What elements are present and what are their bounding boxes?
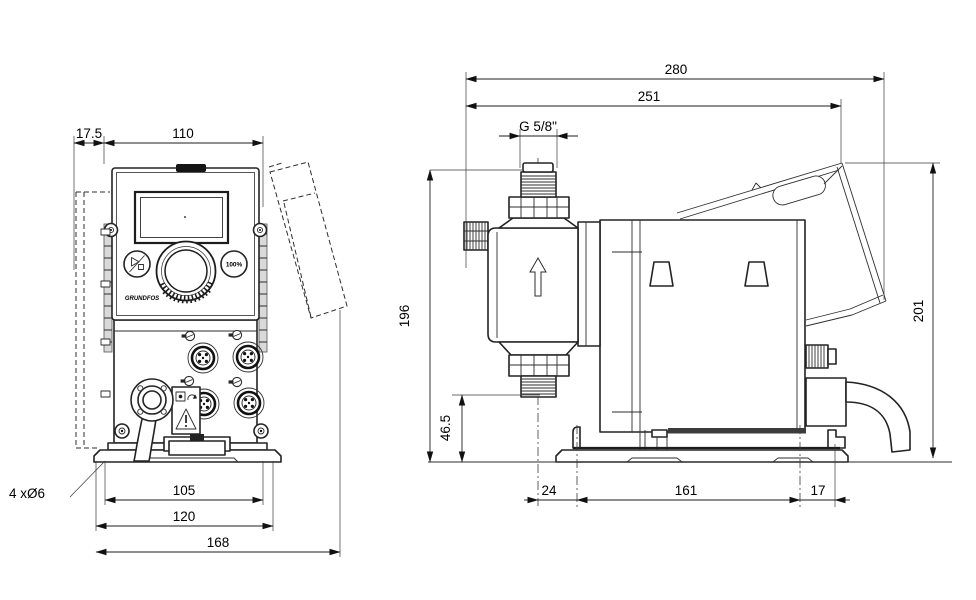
dim-housing-width: 110 — [172, 126, 194, 141]
vent-tab — [650, 262, 673, 286]
screw-icon — [254, 224, 267, 237]
display-cursor-dot — [184, 216, 186, 218]
m12-connector-icon — [188, 343, 218, 373]
technical-drawing-page: 100% GRUNDFOS — [0, 0, 976, 600]
rail-band — [668, 428, 806, 434]
dim-plate-offset-front: 24 — [541, 483, 557, 498]
dim-overall-height: 201 — [911, 300, 926, 323]
dim-connection-thread: G 5/8" — [519, 119, 557, 134]
rear-connections — [806, 345, 910, 452]
rotated-control-cube-dashed — [269, 162, 347, 318]
m12-connector-icon — [233, 342, 263, 372]
dim-bracket-depth: 17.5 — [76, 126, 102, 141]
cable-entry-block — [806, 378, 846, 426]
cube-handle-recess — [771, 174, 828, 208]
dim-plate-length: 161 — [675, 483, 698, 498]
dim-plate-offset-rear: 17 — [810, 483, 825, 498]
mains-cable — [846, 382, 910, 452]
screw-icon — [115, 424, 129, 438]
dim-valve-height: 46.5 — [438, 415, 453, 441]
deaeration-valve — [464, 222, 488, 250]
dosing-pump-dimension-drawing: 100% GRUNDFOS — [0, 0, 976, 600]
capacity-100-button: 100% — [221, 251, 247, 277]
dim-height-connector: 196 — [397, 305, 412, 328]
dim-hole-spacing: 105 — [173, 483, 196, 498]
m12-connector-icon — [234, 388, 264, 418]
screw-icon — [254, 424, 268, 438]
display-screen — [135, 192, 228, 243]
warning-label — [172, 387, 200, 434]
side-view: 280 251 G 5/8" 196 46.5 24 161 — [397, 62, 952, 507]
motor-housing-side — [600, 220, 805, 432]
brand-logo: GRUNDFOS — [125, 296, 159, 302]
mounting-rail — [164, 434, 230, 455]
front-view: 100% GRUNDFOS — [9, 126, 347, 557]
capacity-button-label: 100% — [226, 262, 243, 269]
click-wheel-knob — [157, 242, 216, 302]
vent-tab — [745, 262, 768, 286]
top-plug — [176, 164, 206, 172]
start-stop-button — [124, 251, 150, 277]
dim-mounting-holes: 4 xØ6 — [9, 486, 45, 501]
dim-overall-depth: 280 — [665, 62, 688, 77]
dim-plate-width: 120 — [173, 509, 196, 524]
dim-overall-width: 168 — [207, 535, 230, 550]
dim-housing-depth: 251 — [638, 89, 661, 104]
